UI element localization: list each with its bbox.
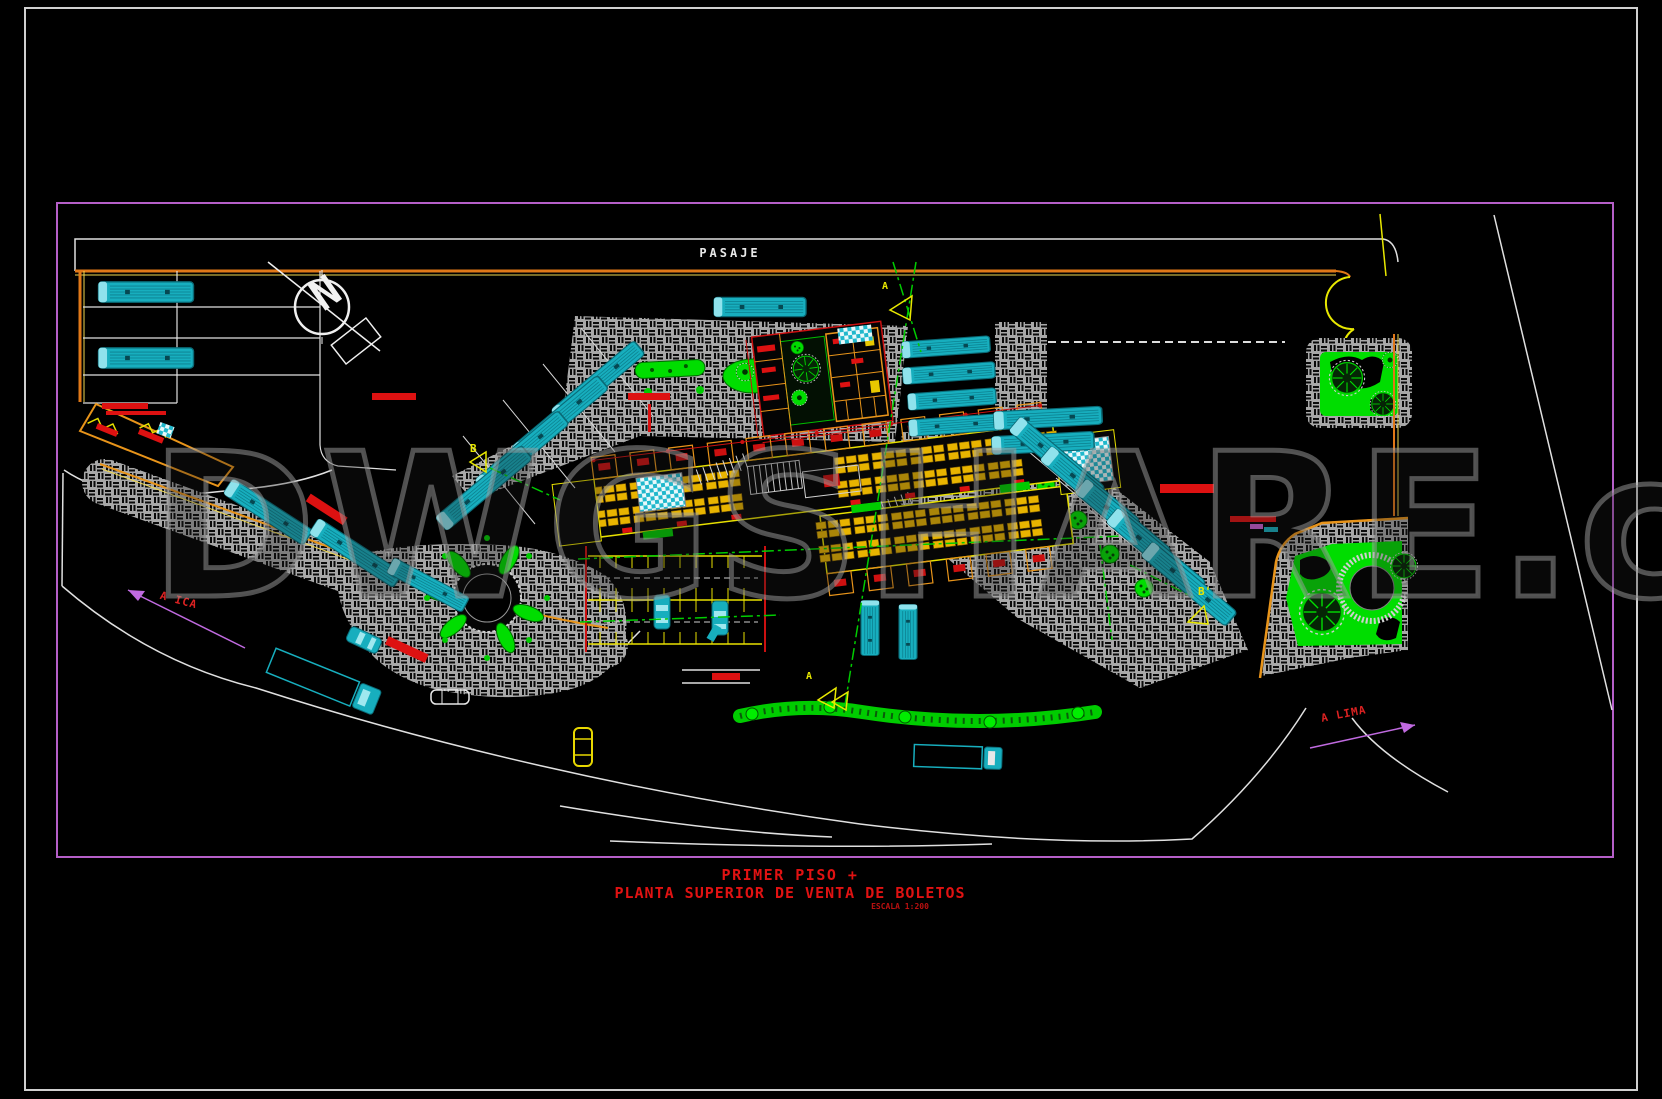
cars-trucks bbox=[266, 624, 1002, 769]
bus bbox=[861, 601, 879, 656]
title-scale-note: ESCALA 1:200 bbox=[845, 902, 955, 911]
bus bbox=[899, 605, 917, 660]
island-southeast bbox=[1250, 517, 1418, 678]
car-yellow bbox=[574, 728, 592, 766]
title-line1: PRIMER PISO + bbox=[540, 866, 1040, 884]
hedge-strip-south bbox=[740, 701, 1095, 728]
annex-west bbox=[552, 479, 601, 546]
bus bbox=[902, 336, 991, 358]
route-arrow-east bbox=[1310, 722, 1415, 748]
stairs bbox=[747, 460, 802, 494]
section-marker-a-bottom: A bbox=[806, 671, 812, 682]
section-marker-b-prime: B' bbox=[1198, 585, 1211, 598]
truck-trailer bbox=[266, 648, 381, 715]
cad-site-plan: PASAJE N A ICA A LIMA A A B B' DWGSHARE.… bbox=[0, 0, 1662, 1099]
street-label: PASAJE bbox=[640, 246, 820, 260]
truck-south bbox=[914, 744, 1003, 769]
bus bbox=[903, 362, 996, 385]
title-line2: PLANTA SUPERIOR DE VENTA DE BOLETOS bbox=[540, 884, 1040, 902]
section-marker-a-top: A bbox=[882, 281, 888, 292]
site-plan-drawing bbox=[0, 0, 1662, 1099]
bus bbox=[908, 388, 997, 410]
island-northeast bbox=[1306, 214, 1412, 516]
section-marker-b: B bbox=[470, 442, 477, 455]
bus bbox=[435, 445, 532, 531]
bus bbox=[99, 348, 194, 368]
bus bbox=[99, 282, 194, 302]
bus bbox=[714, 297, 806, 316]
